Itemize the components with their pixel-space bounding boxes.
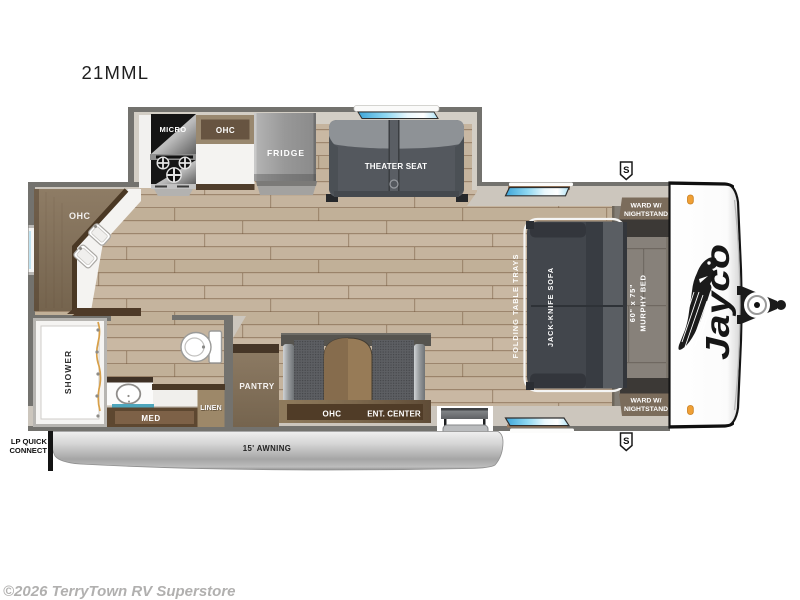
svg-text:WARD W/: WARD W/ xyxy=(631,398,662,405)
svg-text:JACK-KNIFE SOFA: JACK-KNIFE SOFA xyxy=(546,267,555,347)
svg-text:LP QUICK: LP QUICK xyxy=(11,437,48,446)
svg-text:FOLDING TABLE TRAYS: FOLDING TABLE TRAYS xyxy=(511,254,520,359)
svg-text:FRIDGE: FRIDGE xyxy=(267,148,305,158)
svg-text:MURPHY BED: MURPHY BED xyxy=(639,274,648,331)
svg-text:THEATER SEAT: THEATER SEAT xyxy=(365,162,428,171)
svg-text:ENT. CENTER: ENT. CENTER xyxy=(367,410,421,419)
svg-text:MED: MED xyxy=(141,414,160,423)
svg-text:60" x 75": 60" x 75" xyxy=(628,284,637,322)
svg-text:©2026 TerryTown RV Superstore: ©2026 TerryTown RV Superstore xyxy=(3,583,236,600)
svg-text:CONNECT: CONNECT xyxy=(9,446,47,455)
svg-text:NIGHTSTAND: NIGHTSTAND xyxy=(624,211,668,218)
svg-text:Jayco: Jayco xyxy=(699,244,736,360)
svg-text:15' AWNING: 15' AWNING xyxy=(243,444,291,453)
svg-text:OHC: OHC xyxy=(69,211,91,221)
svg-text:LINEN: LINEN xyxy=(200,403,222,412)
svg-text:PANTRY: PANTRY xyxy=(239,382,274,391)
svg-text:MICRO: MICRO xyxy=(160,125,187,134)
svg-text:S: S xyxy=(623,165,629,176)
svg-text:21MML: 21MML xyxy=(82,62,150,83)
svg-text:WARD W/: WARD W/ xyxy=(631,203,662,210)
svg-text:NIGHTSTAND: NIGHTSTAND xyxy=(624,406,668,413)
svg-text:SHOWER: SHOWER xyxy=(63,350,73,394)
svg-text:OHC: OHC xyxy=(216,126,235,135)
svg-text:S: S xyxy=(623,436,629,447)
svg-text:OHC: OHC xyxy=(323,410,342,419)
